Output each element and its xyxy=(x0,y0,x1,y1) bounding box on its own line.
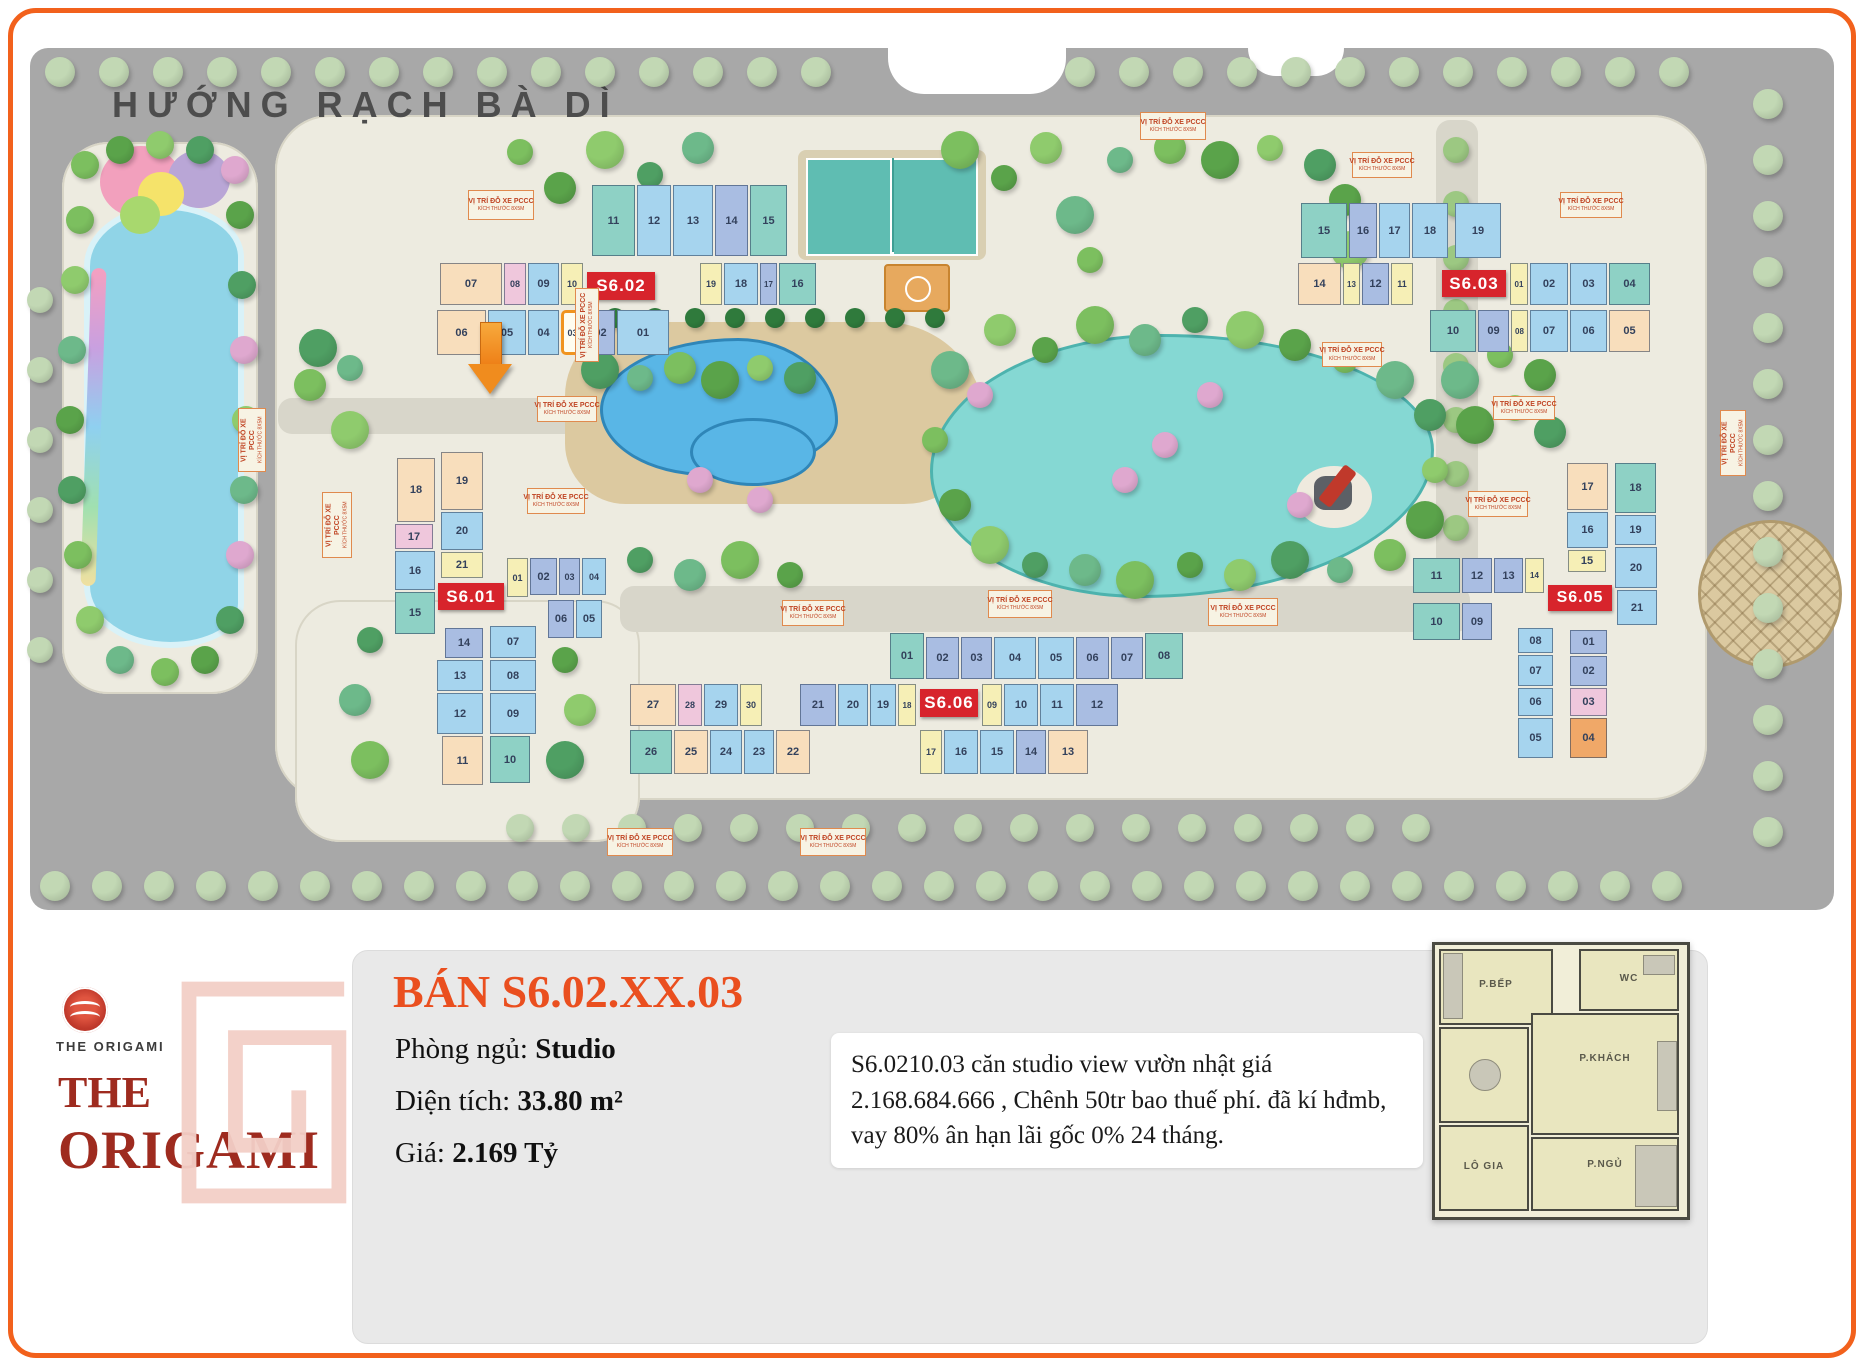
unit-s606-05: 05 xyxy=(1038,637,1074,679)
tree-icon xyxy=(1290,814,1318,842)
unit-s601-08: 08 xyxy=(490,660,536,691)
tree-icon xyxy=(27,567,53,593)
tree-icon xyxy=(1076,306,1114,344)
tree-icon xyxy=(1753,481,1783,511)
building-label-s606: S6.06 xyxy=(920,689,978,717)
tree-icon xyxy=(423,57,453,87)
parking-sign-16: VỊ TRÍ ĐỖ XE PCCCKÍCH THƯỚC 8X5M xyxy=(607,828,673,856)
tree-icon xyxy=(456,871,486,901)
unit-s606-25: 25 xyxy=(674,730,708,774)
unit-s605-20: 20 xyxy=(1615,547,1657,588)
tree-icon xyxy=(404,871,434,901)
tree-icon xyxy=(1753,425,1783,455)
tree-icon xyxy=(506,814,534,842)
tree-icon xyxy=(898,814,926,842)
unit-s603-14: 14 xyxy=(1298,263,1341,305)
tree-icon xyxy=(146,131,174,159)
tree-icon xyxy=(546,741,584,779)
tree-icon xyxy=(531,57,561,87)
unit-s603-02: 02 xyxy=(1530,263,1568,305)
building-label-s601: S6.01 xyxy=(438,583,504,610)
tree-icon xyxy=(674,559,706,591)
tree-icon xyxy=(1056,196,1094,234)
tree-icon xyxy=(1281,57,1311,87)
unit-s601-04: 04 xyxy=(582,558,606,595)
parking-sign-6: VỊ TRÍ ĐỖ XE PCCCKÍCH THƯỚC 8X5M xyxy=(322,492,352,558)
tree-icon xyxy=(664,871,694,901)
tree-icon xyxy=(71,151,99,179)
tree-icon xyxy=(1010,814,1038,842)
parking-sign-5: VỊ TRÍ ĐỖ XE PCCCKÍCH THƯỚC 8X5M xyxy=(238,408,266,472)
tree-icon xyxy=(144,871,174,901)
tree-icon xyxy=(27,287,53,313)
unit-s601-03: 03 xyxy=(559,558,580,595)
tree-icon xyxy=(765,308,785,328)
unit-s602-16: 16 xyxy=(779,263,816,305)
unit-s605-17: 17 xyxy=(1567,463,1608,510)
tree-icon xyxy=(1753,649,1783,679)
area-value: 33.80 m² xyxy=(517,1085,622,1117)
unit-s601-09: 09 xyxy=(490,693,536,734)
tree-icon xyxy=(1346,814,1374,842)
lake xyxy=(84,204,244,648)
tree-icon xyxy=(58,336,86,364)
tree-icon xyxy=(64,541,92,569)
parking-sign-8: VỊ TRÍ ĐỖ XE PCCCKÍCH THƯỚC 8X5M xyxy=(527,488,585,514)
price-label: Giá: xyxy=(395,1137,452,1169)
tree-icon xyxy=(1443,137,1469,163)
unit-s606-04: 04 xyxy=(994,637,1036,679)
basketball-court xyxy=(884,264,950,312)
tree-icon xyxy=(747,57,777,87)
unit-s606-11: 11 xyxy=(1040,684,1074,726)
unit-s602-09: 09 xyxy=(528,263,559,305)
tree-icon xyxy=(1340,871,1370,901)
unit-s602-12: 12 xyxy=(637,185,671,256)
dining-table xyxy=(1469,1059,1501,1091)
unit-s603-03: 03 xyxy=(1570,263,1607,305)
tree-icon xyxy=(1753,201,1783,231)
tennis-net-line xyxy=(892,158,894,252)
tree-icon xyxy=(369,57,399,87)
unit-s606-17: 17 xyxy=(920,730,942,774)
parking-sign-17: VỊ TRÍ ĐỖ XE PCCCKÍCH THƯỚC 8X5M xyxy=(800,828,866,856)
unit-s605-11: 11 xyxy=(1413,558,1460,593)
tree-icon xyxy=(1271,541,1309,579)
tree-icon xyxy=(315,57,345,87)
tree-icon xyxy=(1304,149,1336,181)
unit-s605-02: 02 xyxy=(1570,656,1607,686)
tree-icon xyxy=(1605,57,1635,87)
unit-s605-19: 19 xyxy=(1615,515,1656,545)
tree-icon xyxy=(45,57,75,87)
tree-icon xyxy=(768,871,798,901)
tree-icon xyxy=(1753,369,1783,399)
tree-icon xyxy=(1534,416,1566,448)
unit-s606-03: 03 xyxy=(961,637,992,679)
tree-icon xyxy=(1753,89,1783,119)
tree-icon xyxy=(1201,141,1239,179)
tennis-court-left xyxy=(806,158,892,256)
unit-s606-02: 02 xyxy=(926,637,959,679)
unit-s603-07: 07 xyxy=(1530,310,1568,352)
unit-s601-20: 20 xyxy=(441,512,483,550)
unit-s602-08: 08 xyxy=(504,263,526,305)
bedroom-spec: Phòng ngủ: Studio xyxy=(395,1033,616,1066)
tree-icon xyxy=(721,541,759,579)
tree-icon xyxy=(805,308,825,328)
tree-icon xyxy=(1374,539,1406,571)
unit-s606-21: 21 xyxy=(800,684,836,726)
tree-icon xyxy=(1226,311,1264,349)
parking-sign-10: VỊ TRÍ ĐỖ XE PCCCKÍCH THƯỚC 8X5M xyxy=(988,590,1052,618)
unit-s601-14: 14 xyxy=(445,628,483,658)
tree-icon xyxy=(228,271,256,299)
tree-icon xyxy=(586,131,624,169)
tree-icon xyxy=(226,541,254,569)
tree-icon xyxy=(27,637,53,663)
unit-s602-13: 13 xyxy=(673,185,713,256)
building-label-s603: S6.03 xyxy=(1442,270,1506,297)
tree-icon xyxy=(1389,57,1419,87)
tree-icon xyxy=(1177,552,1203,578)
parking-sign-11: VỊ TRÍ ĐỖ XE PCCCKÍCH THƯỚC 8X5M xyxy=(1208,598,1278,626)
tree-icon xyxy=(1227,57,1257,87)
tree-icon xyxy=(151,658,179,686)
unit-s605-05: 05 xyxy=(1518,718,1553,758)
unit-s606-13: 13 xyxy=(1048,730,1088,774)
unit-s605-12: 12 xyxy=(1462,558,1492,593)
tree-icon xyxy=(1753,817,1783,847)
tree-icon xyxy=(627,547,653,573)
parking-sign-14: VỊ TRÍ ĐỖ XE PCCCKÍCH THƯỚC 8X5M xyxy=(1468,491,1528,517)
tree-icon xyxy=(56,406,84,434)
unit-s601-16: 16 xyxy=(395,551,435,590)
room-balcony: LÔ GIA xyxy=(1439,1125,1529,1211)
tree-icon xyxy=(1422,457,1448,483)
unit-s603-12: 12 xyxy=(1362,263,1389,305)
tree-icon xyxy=(1173,57,1203,87)
direction-title: HƯỚNG RẠCH BÀ DÌ xyxy=(112,84,619,126)
tree-icon xyxy=(1066,814,1094,842)
tree-icon xyxy=(221,156,249,184)
tree-icon xyxy=(1022,552,1048,578)
tree-icon xyxy=(1548,871,1578,901)
tennis-court-right xyxy=(892,158,978,256)
tree-icon xyxy=(337,355,363,381)
description-line-1: S6.0210.03 căn studio view vườn nhật giá xyxy=(851,1047,1403,1083)
listing-description: S6.0210.03 căn studio view vườn nhật giá… xyxy=(831,1033,1423,1168)
unit-s606-18: 18 xyxy=(898,684,916,726)
tree-icon xyxy=(1028,871,1058,901)
tree-icon xyxy=(1184,871,1214,901)
tree-icon xyxy=(1116,561,1154,599)
tree-icon xyxy=(820,871,850,901)
unit-s602-19: 19 xyxy=(700,263,722,305)
parking-sign-4: VỊ TRÍ ĐỖ XE PCCCKÍCH THƯỚC 8X5M xyxy=(1560,192,1622,218)
bedroom-label: Phòng ngủ: xyxy=(395,1033,535,1065)
unit-s606-12: 12 xyxy=(1076,684,1118,726)
tree-icon xyxy=(954,814,982,842)
area-spec: Diện tích: 33.80 m² xyxy=(395,1085,623,1118)
parking-sign-0: VỊ TRÍ ĐỖ XE PCCCKÍCH THƯỚC 8X5M xyxy=(468,190,534,220)
unit-s601-06: 06 xyxy=(548,600,574,638)
unit-s603-04: 04 xyxy=(1609,263,1650,305)
tree-icon xyxy=(508,871,538,901)
parking-sign-1: VỊ TRÍ ĐỖ XE PCCCKÍCH THƯỚC 8X5M xyxy=(575,288,599,362)
description-line-2: 2.168.684.666 , Chênh 50tr bao thuế phí.… xyxy=(851,1083,1403,1119)
tree-icon xyxy=(477,57,507,87)
origami-circle-emblem-icon xyxy=(62,987,108,1033)
tree-icon xyxy=(1069,554,1101,586)
unit-s606-24: 24 xyxy=(710,730,742,774)
parking-sign-7: VỊ TRÍ ĐỖ XE PCCCKÍCH THƯỚC 8X5M xyxy=(537,396,597,422)
tree-icon xyxy=(92,871,122,901)
tree-icon xyxy=(1414,399,1446,431)
tree-icon xyxy=(931,351,969,389)
tree-icon xyxy=(99,57,129,87)
tree-icon xyxy=(27,497,53,523)
tree-icon xyxy=(1443,57,1473,87)
unit-s605-06: 06 xyxy=(1518,688,1553,716)
tree-icon xyxy=(924,871,954,901)
tree-icon xyxy=(1257,135,1283,161)
tree-icon xyxy=(925,308,945,328)
sofa xyxy=(1657,1041,1677,1111)
tree-icon xyxy=(1065,57,1095,87)
tree-icon xyxy=(627,365,653,391)
unit-s601-15: 15 xyxy=(395,592,435,634)
tree-icon xyxy=(76,606,104,634)
tree-icon xyxy=(1443,515,1469,541)
tree-icon xyxy=(357,627,383,653)
playground-green-area xyxy=(120,196,160,234)
unit-s606-08: 08 xyxy=(1145,633,1183,679)
road-exit-north xyxy=(888,20,1066,94)
tree-icon xyxy=(585,57,615,87)
tree-icon xyxy=(191,646,219,674)
origami-g-mark-icon xyxy=(170,975,360,1210)
unit-s603-05: 05 xyxy=(1609,310,1650,352)
tree-icon xyxy=(40,871,70,901)
unit-s603-01: 01 xyxy=(1510,263,1528,305)
unit-s601-21: 21 xyxy=(441,552,483,578)
tree-icon xyxy=(560,871,590,901)
tree-icon xyxy=(1753,593,1783,623)
tree-icon xyxy=(196,871,226,901)
unit-s605-08: 08 xyxy=(1518,628,1553,653)
tree-icon xyxy=(971,526,1009,564)
area-label: Diện tích: xyxy=(395,1085,517,1117)
tree-icon xyxy=(687,467,713,493)
unit-s601-01: 01 xyxy=(507,558,528,597)
tree-icon xyxy=(1406,501,1444,539)
tree-icon xyxy=(747,487,773,513)
unit-s603-15: 15 xyxy=(1301,203,1347,258)
tree-icon xyxy=(331,411,369,449)
unit-s603-13: 13 xyxy=(1343,263,1360,305)
tree-icon xyxy=(1178,814,1206,842)
unit-s606-20: 20 xyxy=(838,684,868,726)
tree-icon xyxy=(1551,57,1581,87)
tree-icon xyxy=(261,57,291,87)
unit-s606-22: 22 xyxy=(776,730,810,774)
building-label-s605: S6.05 xyxy=(1548,585,1612,611)
brand-logo: THE ORIGAMI THE ORIGAMI xyxy=(52,975,342,1315)
unit-s603-08: 08 xyxy=(1511,310,1528,352)
tree-icon xyxy=(1236,871,1266,901)
unit-s606-14: 14 xyxy=(1016,730,1046,774)
unit-s602-04: 04 xyxy=(528,310,559,355)
tree-icon xyxy=(1112,467,1138,493)
unit-s606-09: 09 xyxy=(982,684,1002,726)
tree-icon xyxy=(1129,324,1161,356)
brand-the: THE xyxy=(58,1067,151,1118)
bedroom-value: Studio xyxy=(535,1033,616,1065)
tree-icon xyxy=(544,172,576,204)
tree-icon xyxy=(801,57,831,87)
tree-icon xyxy=(1392,871,1422,901)
kitchen-counter xyxy=(1443,953,1463,1019)
unit-s601-18: 18 xyxy=(397,458,435,522)
unit-s601-07: 07 xyxy=(490,626,536,658)
highlight-arrow-icon xyxy=(468,322,512,396)
tree-icon xyxy=(1753,145,1783,175)
tree-icon xyxy=(716,871,746,901)
tree-icon xyxy=(226,201,254,229)
price-value: 2.169 Tỷ xyxy=(452,1137,558,1169)
tree-icon xyxy=(1600,871,1630,901)
tree-icon xyxy=(1279,329,1311,361)
tree-icon xyxy=(1080,871,1110,901)
unit-s605-03: 03 xyxy=(1570,688,1607,716)
unit-s601-13: 13 xyxy=(437,660,483,691)
price-spec: Giá: 2.169 Tỷ xyxy=(395,1137,558,1170)
unit-s601-05: 05 xyxy=(576,600,602,638)
tree-icon xyxy=(845,308,865,328)
origami-listing-graphic: HƯỚNG RẠCH BÀ DÌ xyxy=(0,0,1864,1366)
unit-s601-11: 11 xyxy=(442,736,483,785)
tree-icon xyxy=(1288,871,1318,901)
unit-s605-14: 14 xyxy=(1525,558,1544,593)
unit-s605-13: 13 xyxy=(1494,558,1523,593)
tree-icon xyxy=(299,329,337,367)
parking-sign-13: VỊ TRÍ ĐỖ XE PCCCKÍCH THƯỚC 8X5M xyxy=(1493,396,1555,420)
tree-icon xyxy=(1132,871,1162,901)
tree-icon xyxy=(1441,361,1479,399)
tree-icon xyxy=(991,165,1017,191)
tree-icon xyxy=(701,361,739,399)
unit-s601-17: 17 xyxy=(395,524,433,549)
tree-icon xyxy=(1152,432,1178,458)
tree-icon xyxy=(674,814,702,842)
brand-small-text: THE ORIGAMI xyxy=(56,1039,165,1054)
tree-icon xyxy=(294,369,326,401)
unit-s606-23: 23 xyxy=(744,730,774,774)
tree-icon xyxy=(784,362,816,394)
tree-icon xyxy=(1119,57,1149,87)
tree-icon xyxy=(27,357,53,383)
unit-s606-06: 06 xyxy=(1076,637,1109,679)
unit-floor-plan: P.BẾP WC P.ĂN P.KHÁCH P.NGỦ LÔ GIA xyxy=(1432,942,1690,1220)
tree-icon xyxy=(1030,132,1062,164)
tree-icon xyxy=(922,427,948,453)
parking-sign-12: VỊ TRÍ ĐỖ XE PCCCKÍCH THƯỚC 8X5M xyxy=(1322,342,1382,367)
tree-icon xyxy=(984,314,1016,346)
tree-icon xyxy=(976,871,1006,901)
unit-s606-07: 07 xyxy=(1111,637,1143,679)
tree-icon xyxy=(106,136,134,164)
unit-s605-04: 04 xyxy=(1570,718,1607,758)
tree-icon xyxy=(682,132,714,164)
tree-icon xyxy=(939,489,971,521)
unit-s606-15: 15 xyxy=(980,730,1014,774)
unit-s602-01: 01 xyxy=(617,310,669,355)
tree-icon xyxy=(1753,257,1783,287)
tree-icon xyxy=(612,871,642,901)
tree-icon xyxy=(1032,337,1058,363)
unit-s606-29: 29 xyxy=(704,684,738,726)
tree-icon xyxy=(216,606,244,634)
unit-s602-17: 17 xyxy=(760,263,777,305)
tree-icon xyxy=(1182,307,1208,333)
unit-s605-15: 15 xyxy=(1568,550,1606,572)
unit-s605-18: 18 xyxy=(1615,463,1656,513)
unit-s601-12: 12 xyxy=(437,693,483,734)
tree-icon xyxy=(1456,406,1494,444)
unit-s603-10: 10 xyxy=(1430,310,1476,352)
tree-icon xyxy=(885,308,905,328)
unit-s606-28: 28 xyxy=(678,684,702,726)
unit-s605-09: 09 xyxy=(1462,603,1492,640)
tree-icon xyxy=(1753,761,1783,791)
unit-s603-16: 16 xyxy=(1349,203,1377,258)
description-line-3: vay 80% ân hạn lãi gốc 0% 24 tháng. xyxy=(851,1118,1403,1154)
tree-icon xyxy=(106,646,134,674)
unit-s606-01: 01 xyxy=(890,633,924,679)
unit-s606-10: 10 xyxy=(1004,684,1038,726)
tree-icon xyxy=(1077,247,1103,273)
unit-s603-11: 11 xyxy=(1391,263,1413,305)
tree-icon xyxy=(153,57,183,87)
tree-icon xyxy=(230,336,258,364)
tree-icon xyxy=(300,871,330,901)
tree-icon xyxy=(777,562,803,588)
unit-s602-18: 18 xyxy=(724,263,758,305)
tree-icon xyxy=(693,57,723,87)
unit-s603-18: 18 xyxy=(1412,203,1448,258)
unit-s605-16: 16 xyxy=(1567,512,1608,548)
unit-s602-14: 14 xyxy=(715,185,748,256)
tree-icon xyxy=(967,382,993,408)
unit-s602-15: 15 xyxy=(750,185,787,256)
listing-title: BÁN S6.02.XX.03 xyxy=(393,965,743,1018)
tree-icon xyxy=(1659,57,1689,87)
tree-icon xyxy=(1287,492,1313,518)
tree-icon xyxy=(1753,705,1783,735)
tree-icon xyxy=(339,684,371,716)
unit-s606-30: 30 xyxy=(740,684,762,726)
unit-s603-09: 09 xyxy=(1478,310,1509,352)
unit-s606-19: 19 xyxy=(870,684,896,726)
unit-s601-10: 10 xyxy=(490,736,530,783)
tree-icon xyxy=(552,647,578,673)
tree-icon xyxy=(639,57,669,87)
tree-icon xyxy=(207,57,237,87)
wc-fixture xyxy=(1643,955,1675,975)
unit-s606-26: 26 xyxy=(630,730,672,774)
tree-icon xyxy=(66,206,94,234)
